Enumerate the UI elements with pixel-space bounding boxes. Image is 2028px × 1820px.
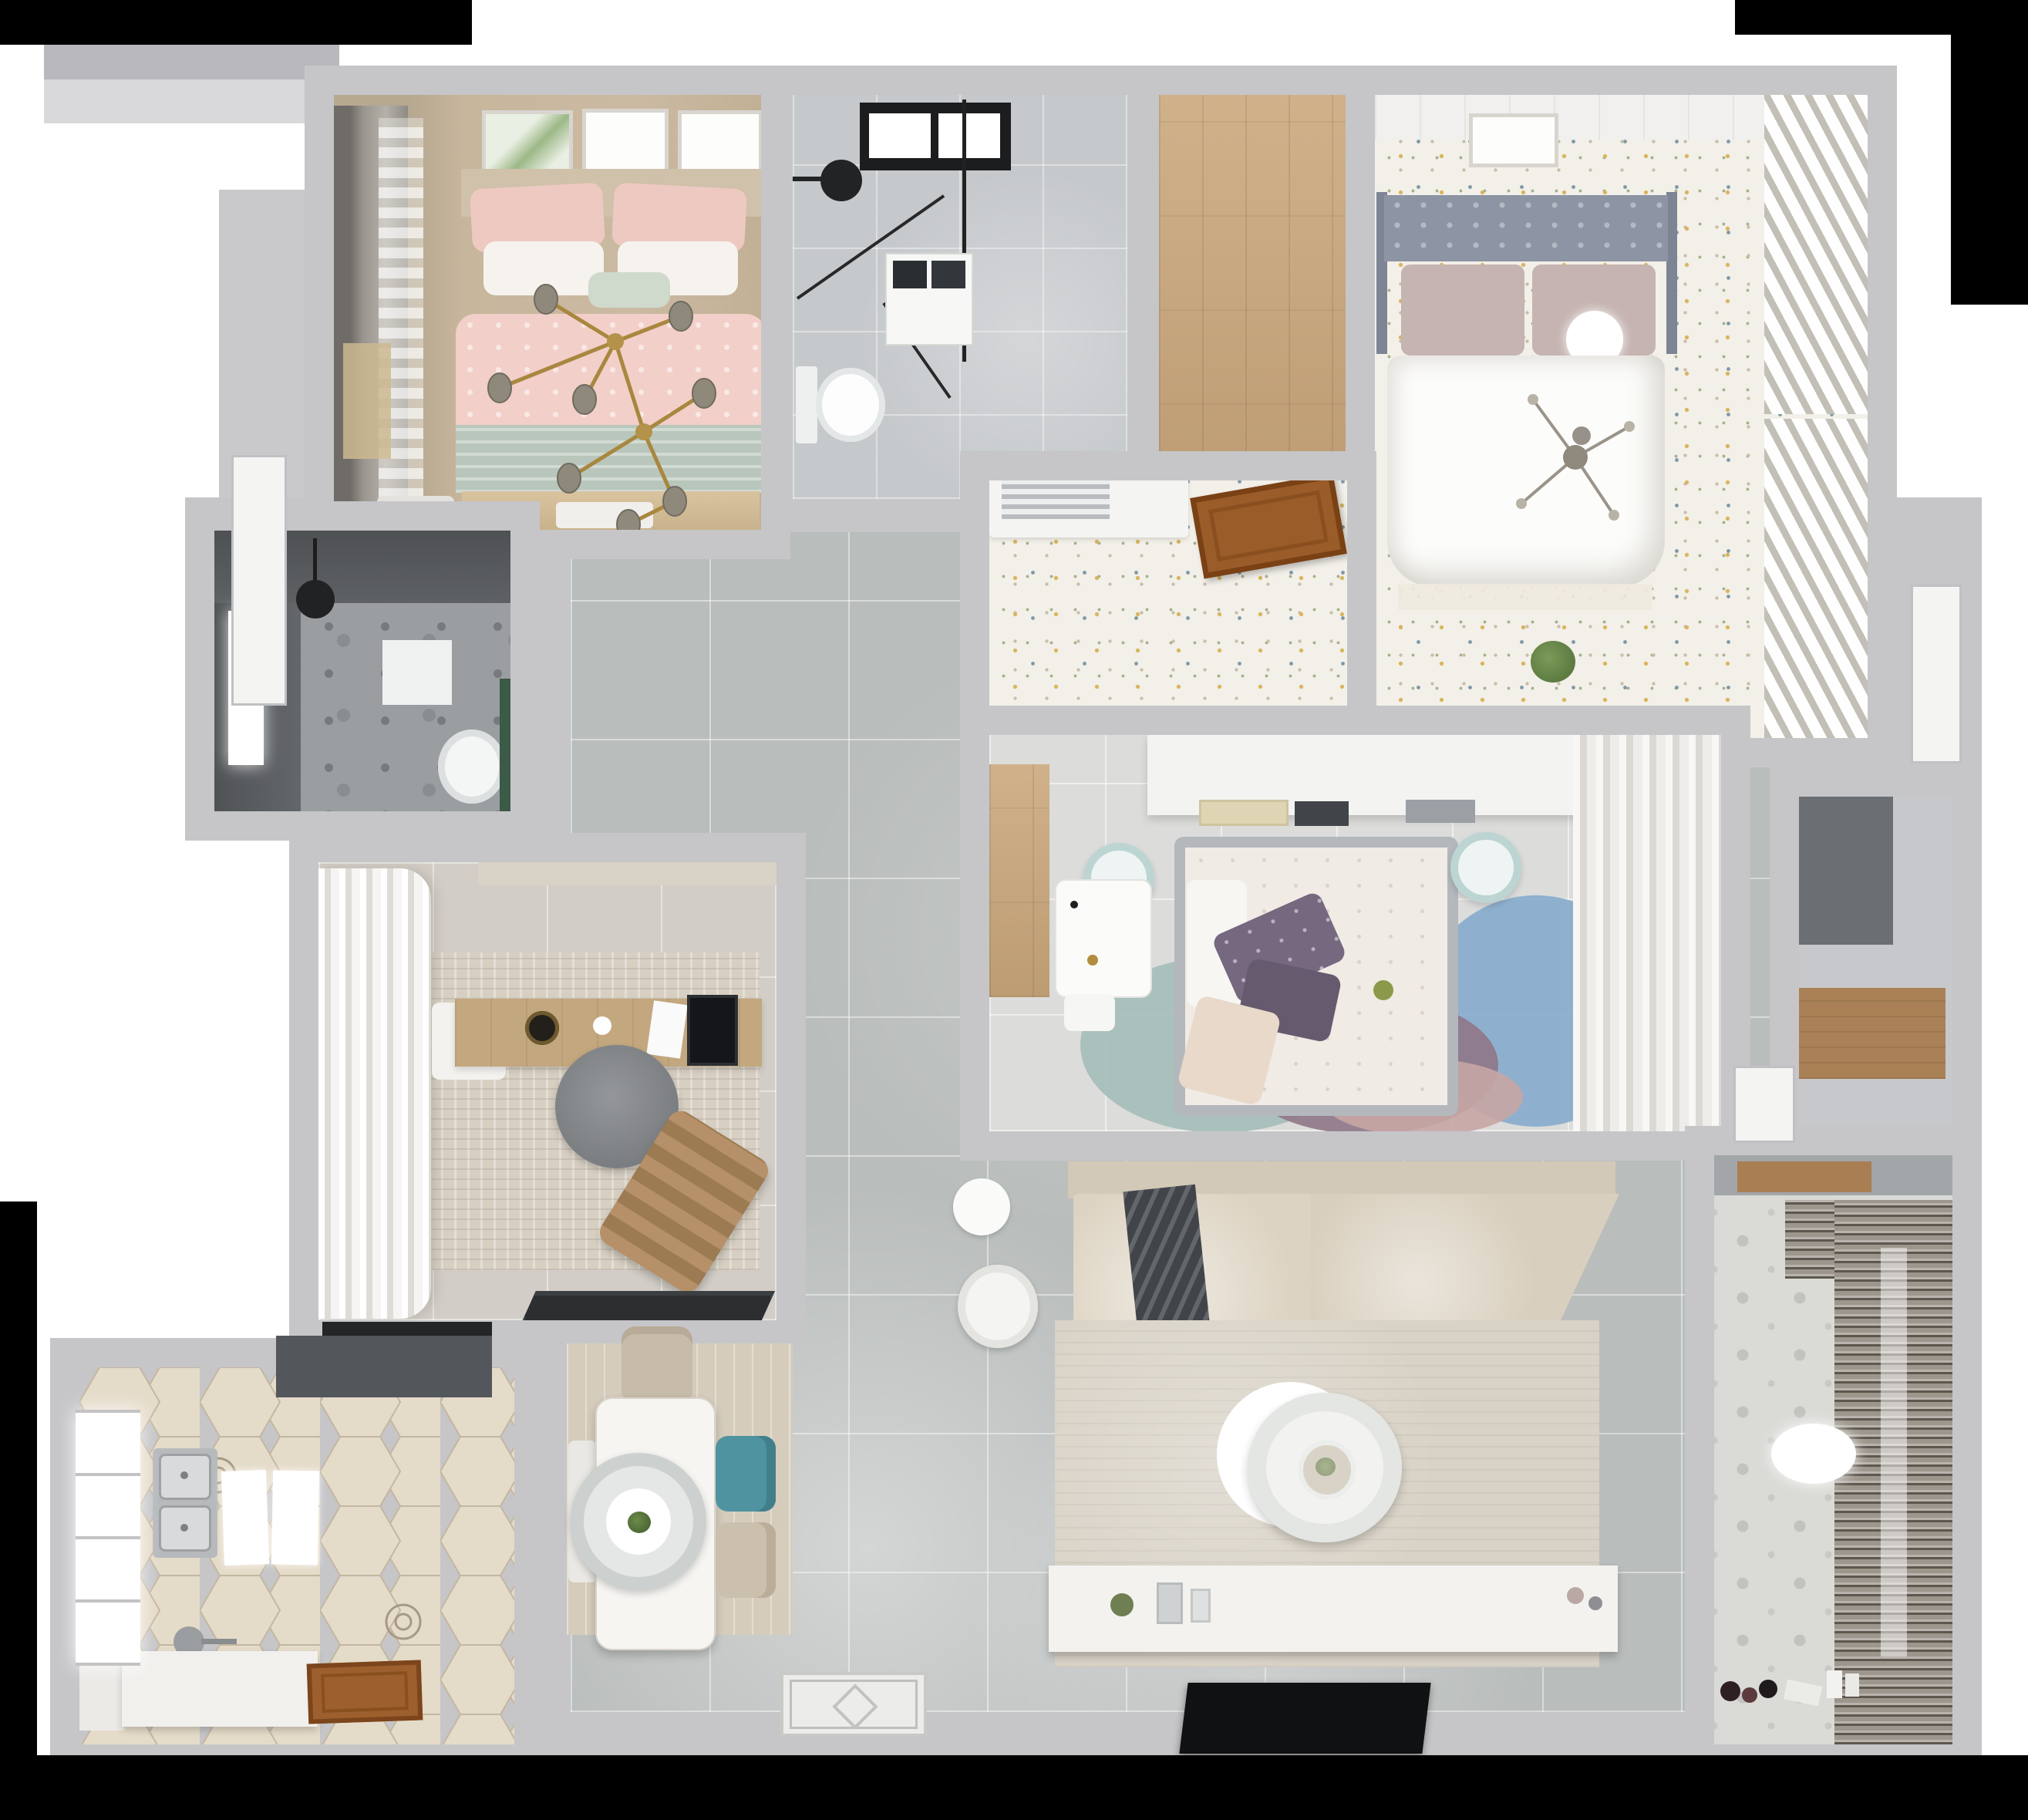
potted-plant (1531, 641, 1575, 682)
wood-floor-strip (989, 764, 1049, 997)
vanity-dark-tile (893, 261, 927, 288)
room-bedroom-pink (305, 66, 790, 559)
ac-vent-unit (989, 480, 1188, 538)
black-matte-bottom (0, 1755, 2028, 1820)
toy (1742, 1687, 1757, 1703)
open-white-door (231, 455, 287, 706)
ornamental-entry-mat (780, 1672, 927, 1737)
plant-sprig (1316, 1458, 1336, 1476)
door-panel (321, 1671, 409, 1713)
desk-accessory (1070, 901, 1078, 908)
book-stack (1199, 800, 1289, 826)
television (1179, 1683, 1430, 1754)
shadowed-alcove (1799, 797, 1893, 945)
kitchen-floor (79, 1367, 514, 1744)
console-decor-green (1110, 1593, 1134, 1616)
wardrobe-corridor-wood-floor (1159, 95, 1347, 499)
pendant-lamp (571, 1453, 706, 1590)
island-counter (122, 1651, 318, 1727)
pendant-rod (313, 538, 317, 586)
black-framed-window (860, 103, 1011, 170)
kitchen-window (76, 1410, 140, 1666)
counter-mat (271, 1470, 319, 1565)
sink-drain (180, 1471, 188, 1479)
round-armchair (958, 1265, 1038, 1348)
louvered-closet-door (1764, 419, 1868, 738)
master-bedroom-carpet (1375, 95, 1868, 738)
book-stack (1295, 801, 1349, 826)
room-balcony (1685, 1126, 1982, 1774)
book-stack (1406, 800, 1475, 823)
toilet-tank (796, 366, 817, 443)
floorplan-render (0, 0, 2028, 1820)
tv-console (1049, 1566, 1618, 1652)
range-hood (276, 1336, 492, 1397)
wall-towel-box (382, 640, 452, 705)
rain-shower-head (820, 160, 862, 201)
black-matte-right-edge (1951, 35, 2028, 305)
door-panel (1208, 490, 1329, 561)
gray-branch-chandelier (1491, 372, 1660, 542)
window-light-sliver (1881, 1248, 1907, 1657)
ruffled-curtains (318, 868, 431, 1319)
oval-ceiling-light (1771, 1424, 1856, 1484)
dining-chair-teal (716, 1436, 776, 1512)
open-white-door (1733, 1066, 1795, 1143)
wood-window-sill (1737, 1161, 1871, 1192)
second-bedroom-floor (989, 735, 1721, 1131)
dining-chair-beige (622, 1326, 692, 1399)
black-matte-top-right (1735, 0, 2028, 35)
console-decor-glass (1157, 1582, 1183, 1624)
counter-mat (221, 1470, 269, 1566)
headboard-wing (1666, 192, 1677, 354)
room-master-bedroom (1346, 66, 1897, 767)
roller-shade (478, 862, 777, 885)
plant-pot (525, 1011, 559, 1045)
room-study (289, 833, 806, 1350)
top-left-wall-edge-dark (44, 45, 339, 79)
green-accent-dot (1373, 980, 1393, 1000)
vanity-dark-tile (931, 261, 965, 288)
toilet (438, 730, 506, 804)
vanity-cabinet (885, 253, 973, 345)
sheer-closet-curtains (1573, 735, 1721, 1131)
round-stool (1450, 832, 1521, 903)
coffee-table (1248, 1393, 1402, 1542)
wall-art-frame (1469, 113, 1558, 167)
room-second-bedroom (960, 706, 1750, 1161)
console-decor (1588, 1596, 1602, 1610)
wood-shelf-ledge (1799, 988, 1945, 1079)
toy (1759, 1680, 1777, 1698)
white-cup (1845, 1673, 1859, 1697)
mauve-pillow (1401, 265, 1524, 356)
balcony-floor (1714, 1155, 1952, 1744)
black-matte-top-left (0, 0, 472, 45)
bed-fringe (1398, 584, 1652, 610)
toilet-bowl (816, 368, 885, 442)
toy (1720, 1681, 1740, 1701)
console-decor (1567, 1587, 1584, 1604)
top-left-wall-edge-light (44, 79, 339, 123)
master-entry-carpet (989, 480, 1347, 738)
louvered-closet-door (1764, 95, 1868, 414)
desk-stool (1064, 994, 1115, 1031)
gold-branch-chandelier (450, 268, 761, 530)
study-floor (318, 862, 777, 1320)
double-stainless-sink (153, 1448, 217, 1558)
kitchen-wood-door (307, 1660, 423, 1724)
white-cup (1827, 1670, 1842, 1698)
open-wood-door (1190, 480, 1347, 579)
background-notch (185, 841, 289, 1338)
ceiling-plank-band (1375, 95, 1764, 140)
plant-centerpiece (628, 1512, 651, 1533)
black-matte-left-edge (0, 1202, 37, 1755)
door-mat (520, 1291, 775, 1320)
bedroom-pink-floor (334, 95, 761, 530)
open-white-door (1911, 585, 1962, 763)
shower-bathroom-floor (793, 95, 1127, 499)
pendant-shower-light (296, 580, 335, 618)
wall-art-frame (678, 110, 761, 174)
green-accent-panel (500, 679, 510, 811)
desk-accessory (1087, 955, 1098, 966)
sink-drain (180, 1524, 188, 1532)
dining-chair-beige (716, 1522, 776, 1598)
cup (593, 1016, 611, 1035)
ac-grille (1002, 480, 1110, 519)
wall-art-frame (582, 109, 669, 174)
niche-interior (1799, 797, 1952, 1127)
console-decor-glass (1191, 1589, 1211, 1623)
paper-sheet (1784, 1680, 1822, 1707)
roman-shade (343, 343, 391, 459)
round-side-table (953, 1178, 1010, 1235)
room-storage-niche (1770, 767, 1982, 1157)
tufted-headboard (1384, 195, 1668, 261)
sheer-curtain (379, 118, 423, 519)
wall-art-botanical (482, 110, 573, 174)
desktop-monitor (687, 995, 738, 1066)
white-desk (1055, 879, 1152, 998)
